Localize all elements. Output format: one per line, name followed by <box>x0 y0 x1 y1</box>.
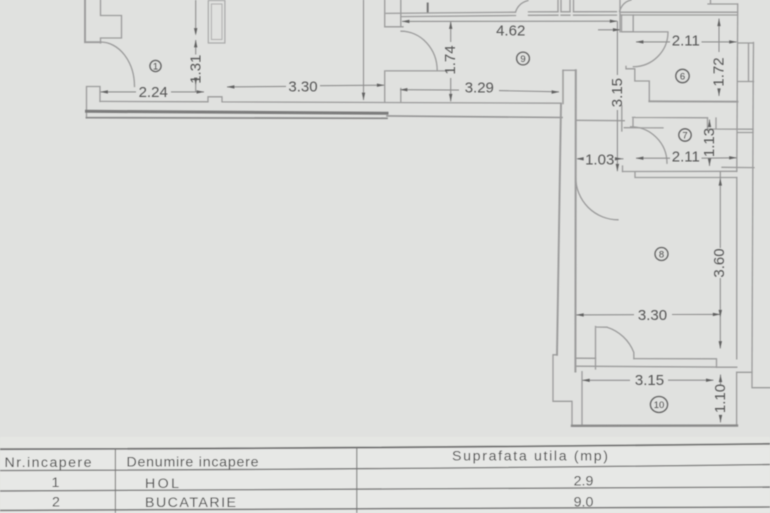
svg-text:Denumire incapere: Denumire incapere <box>127 455 259 471</box>
svg-text:1: 1 <box>52 475 60 491</box>
svg-text:2.11: 2.11 <box>672 32 700 49</box>
svg-text:1.10: 1.10 <box>712 384 729 413</box>
svg-text:HOL: HOL <box>145 476 179 492</box>
svg-text:7: 7 <box>682 131 687 142</box>
svg-text:3.29: 3.29 <box>465 80 494 97</box>
svg-text:2: 2 <box>52 495 60 511</box>
svg-text:3.15: 3.15 <box>635 372 664 389</box>
svg-text:BUCATARIE: BUCATARIE <box>145 495 236 511</box>
svg-text:1.03: 1.03 <box>585 151 614 168</box>
svg-text:1.74: 1.74 <box>442 45 459 74</box>
svg-text:1: 1 <box>153 61 158 72</box>
svg-text:2.11: 2.11 <box>672 148 700 165</box>
svg-text:1.31: 1.31 <box>188 55 205 84</box>
svg-text:3.15: 3.15 <box>609 78 626 107</box>
svg-text:Suprafata utila (mp): Suprafata utila (mp) <box>452 449 608 465</box>
svg-text:9.0: 9.0 <box>574 495 594 511</box>
svg-text:1.13: 1.13 <box>701 128 718 157</box>
svg-text:3.60: 3.60 <box>711 248 728 277</box>
svg-text:3.30: 3.30 <box>638 307 667 324</box>
svg-text:2.24: 2.24 <box>139 84 168 101</box>
svg-text:3.30: 3.30 <box>288 79 317 96</box>
svg-text:4.62: 4.62 <box>496 22 525 39</box>
svg-text:6: 6 <box>680 72 685 83</box>
svg-text:1.72: 1.72 <box>711 57 728 86</box>
svg-text:9: 9 <box>520 54 525 65</box>
svg-text:2.9: 2.9 <box>574 474 594 490</box>
svg-text:10: 10 <box>654 400 665 411</box>
svg-text:8: 8 <box>659 250 664 261</box>
